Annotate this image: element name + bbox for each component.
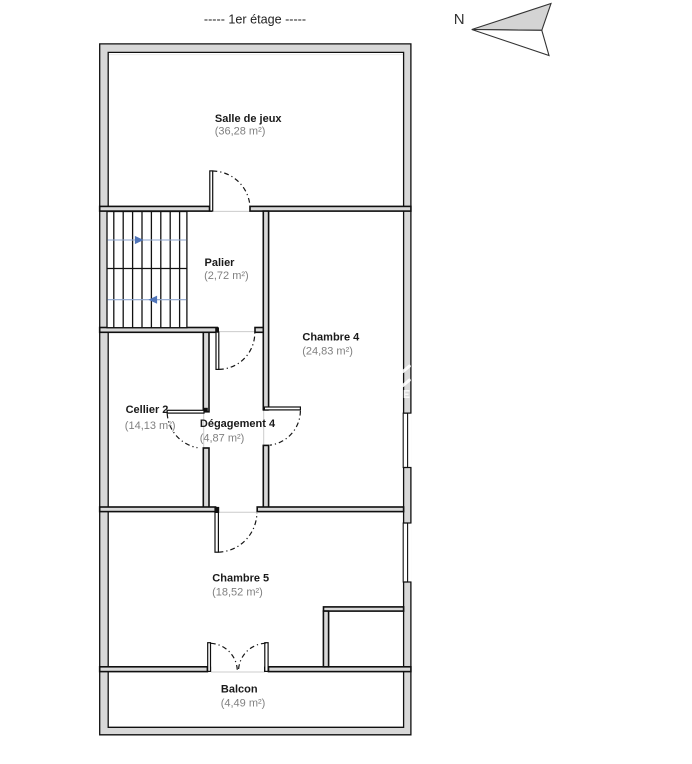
- svg-text:Salle de jeux: Salle de jeux: [215, 113, 283, 125]
- svg-text:Balcon: Balcon: [221, 684, 258, 696]
- svg-text:(14,13 m²): (14,13 m²): [125, 420, 176, 432]
- svg-text:Cellier 2: Cellier 2: [126, 404, 169, 416]
- svg-text:Dégagement 4: Dégagement 4: [200, 418, 276, 430]
- svg-text:N: N: [454, 11, 465, 28]
- svg-text:(24,83 m²): (24,83 m²): [302, 346, 353, 358]
- svg-text:----- 1er étage -----: ----- 1er étage -----: [204, 13, 306, 27]
- svg-text:(4,87 m²): (4,87 m²): [200, 433, 245, 445]
- svg-text:(2,72 m²): (2,72 m²): [204, 270, 249, 282]
- svg-text:(4,49 m²): (4,49 m²): [221, 698, 266, 710]
- svg-text:Palier: Palier: [205, 257, 236, 269]
- svg-text:Chambre 5: Chambre 5: [212, 573, 269, 585]
- svg-text:Chambre 4: Chambre 4: [302, 332, 360, 344]
- svg-text:(18,52 m²): (18,52 m²): [212, 586, 263, 598]
- svg-text:(36,28 m²): (36,28 m²): [215, 125, 266, 137]
